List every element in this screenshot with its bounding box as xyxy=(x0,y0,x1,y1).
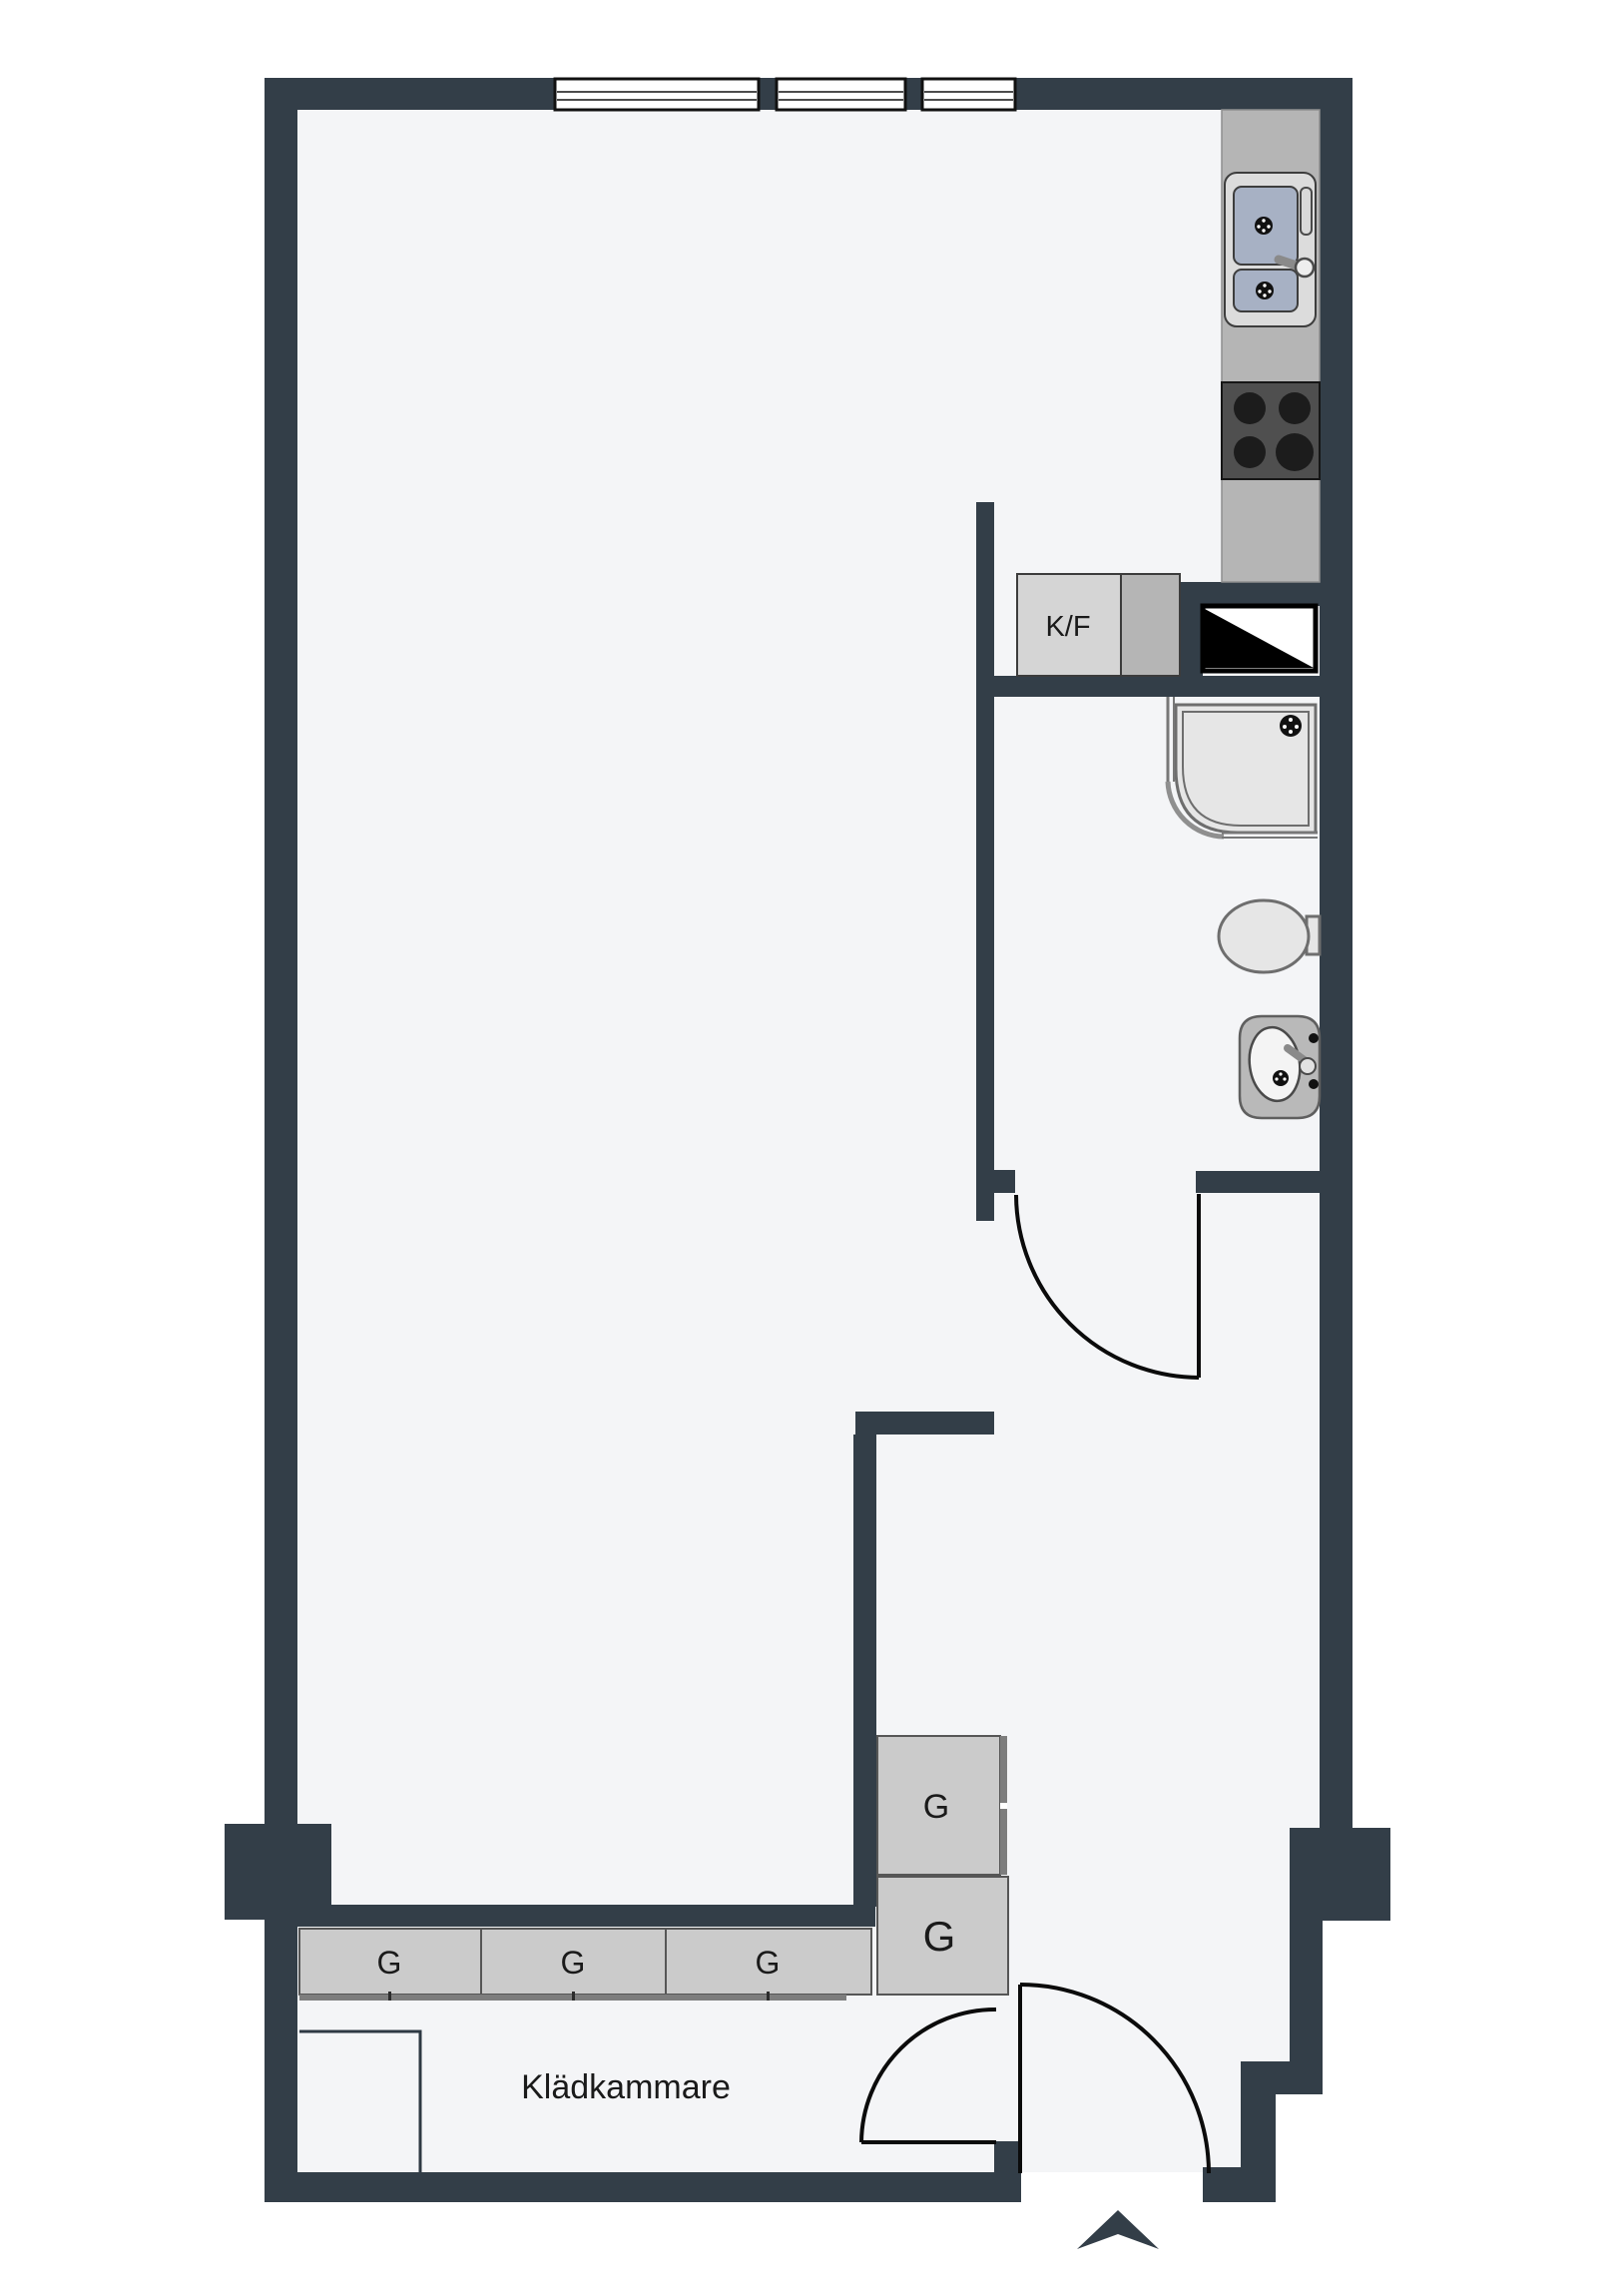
entry-arrow-icon xyxy=(1077,2210,1159,2249)
wardrobe-label-4: G xyxy=(923,1788,949,1826)
wall-bathroom-top xyxy=(976,676,1320,697)
washbasin-icon xyxy=(1240,1016,1320,1118)
window-3 xyxy=(922,79,1015,110)
stove-icon xyxy=(1222,382,1320,479)
window-1 xyxy=(555,79,759,110)
shower-icon xyxy=(1168,697,1318,838)
floor-area xyxy=(297,110,1320,2172)
wall-right-below-pilaster xyxy=(1290,1921,1323,2061)
wall-mainroom-bottom xyxy=(297,1905,875,1927)
wall-mid-horizontal xyxy=(855,1412,994,1435)
wall-left-lower xyxy=(265,1920,297,2202)
wall-right-lower-column xyxy=(1241,2094,1276,2167)
wardrobe-label-5: G xyxy=(923,1913,956,1960)
fridge-freezer-label: K/F xyxy=(1045,611,1090,643)
kitchen-sink-icon xyxy=(1225,173,1316,326)
wall-kitchen-divider xyxy=(976,502,994,1221)
wall-bathroom-bottom xyxy=(1196,1171,1320,1193)
windows xyxy=(555,79,1015,110)
wardrobe-row: G G G xyxy=(299,1929,871,2001)
shaft-symbol-icon xyxy=(1203,606,1316,671)
wall-right-pilaster xyxy=(1290,1828,1390,1921)
wall-bathroom-door-stub xyxy=(994,1170,1015,1193)
wall-right-main xyxy=(1320,78,1352,1828)
wardrobe-label-1: G xyxy=(377,1945,402,1981)
wardrobe-label-2: G xyxy=(561,1945,586,1981)
window-2 xyxy=(777,79,905,110)
wall-left xyxy=(265,78,297,1824)
wall-bottom xyxy=(265,2172,1021,2202)
wardrobe-column: G G xyxy=(877,1736,1008,1995)
wall-shaft-niche-left xyxy=(1180,582,1203,697)
wall-mid-vertical xyxy=(853,1435,876,1907)
wall-entry-right-block xyxy=(1203,2167,1276,2202)
fridge-freezer-cabinet: K/F xyxy=(1017,574,1180,676)
wardrobe-label-3: G xyxy=(756,1945,781,1981)
wall-right-step xyxy=(1241,2061,1323,2094)
wall-entry-left-post xyxy=(994,2141,1021,2202)
closet-room-label: Klädkammare xyxy=(521,2068,731,2106)
outside-patch xyxy=(1276,2094,1324,2172)
floor-plan: K/F xyxy=(0,0,1623,2296)
